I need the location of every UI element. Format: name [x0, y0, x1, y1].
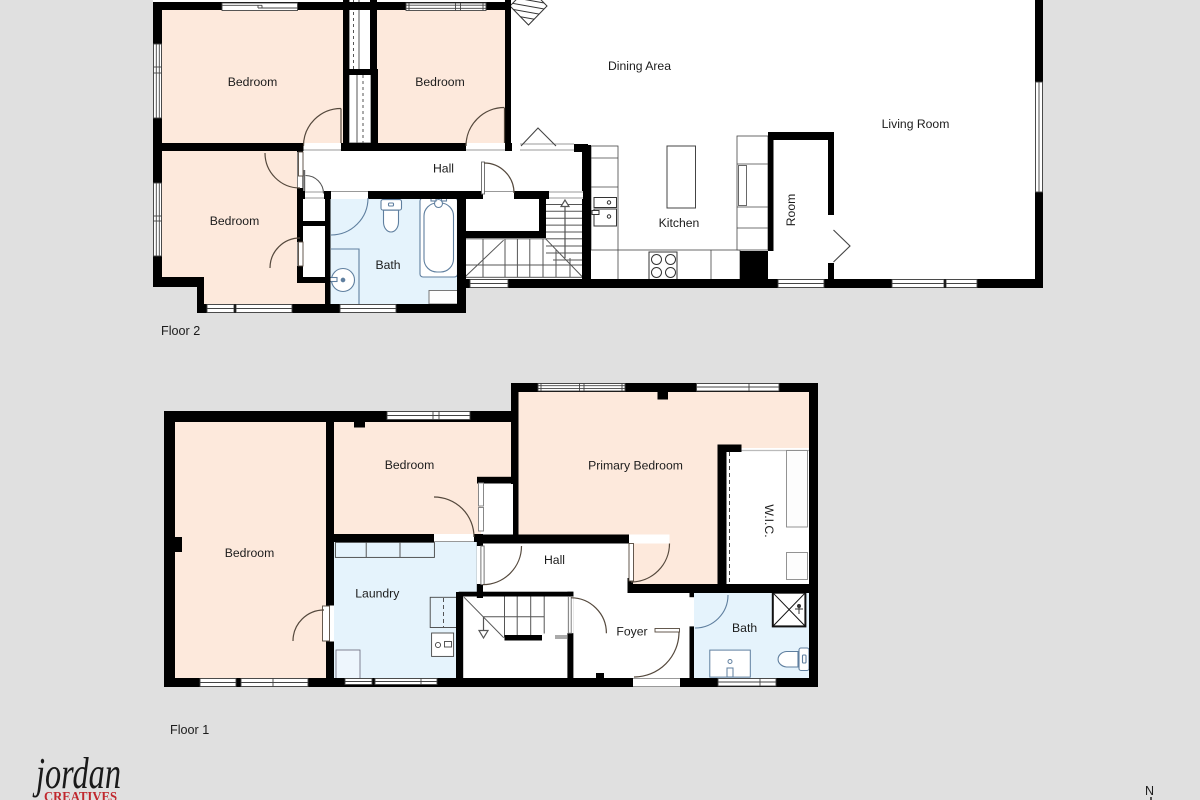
svg-text:Primary Bedroom: Primary Bedroom — [588, 459, 683, 473]
svg-text:Bedroom: Bedroom — [228, 75, 277, 89]
svg-text:Bedroom: Bedroom — [415, 75, 464, 89]
svg-text:Room: Room — [784, 194, 798, 227]
svg-text:Bedroom: Bedroom — [210, 214, 259, 228]
svg-text:CREATIVES: CREATIVES — [44, 790, 117, 800]
svg-text:Bath: Bath — [375, 258, 400, 272]
svg-text:Dining Area: Dining Area — [608, 59, 671, 73]
svg-text:Kitchen: Kitchen — [659, 216, 700, 230]
svg-text:Hall: Hall — [544, 553, 565, 567]
svg-text:Bath: Bath — [732, 621, 757, 635]
svg-text:Bedroom: Bedroom — [225, 546, 274, 560]
svg-text:Living Room: Living Room — [882, 117, 950, 131]
svg-text:W.I.C.: W.I.C. — [762, 504, 776, 537]
svg-text:Floor 1: Floor 1 — [170, 723, 209, 737]
svg-text:Bedroom: Bedroom — [385, 458, 434, 472]
svg-text:Foyer: Foyer — [616, 625, 647, 639]
svg-text:Hall: Hall — [433, 162, 454, 176]
svg-text:N: N — [1145, 784, 1154, 798]
svg-text:Floor 2: Floor 2 — [161, 324, 200, 338]
svg-text:Laundry: Laundry — [355, 587, 400, 601]
